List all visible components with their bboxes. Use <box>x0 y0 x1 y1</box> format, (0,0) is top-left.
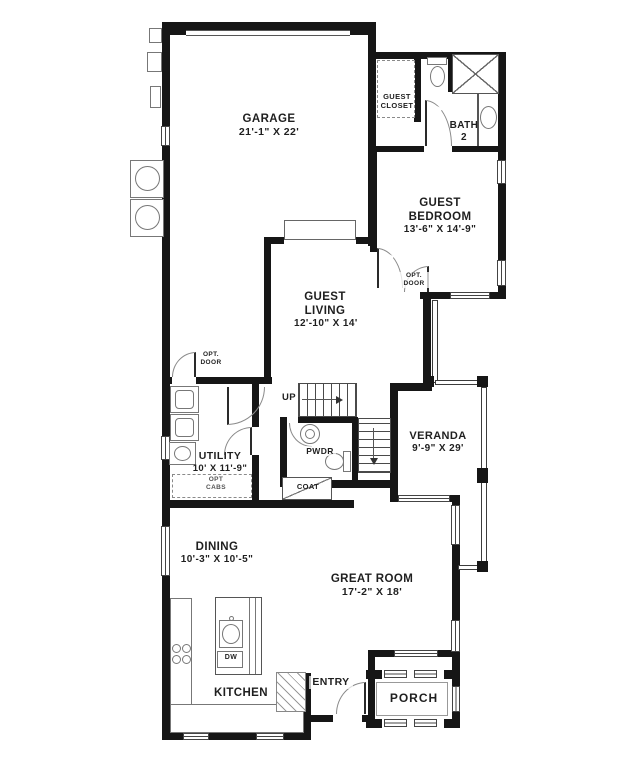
dw-label: DW <box>222 654 240 663</box>
stairs-up-flight <box>298 383 357 417</box>
window <box>497 160 506 184</box>
washer-drum <box>175 390 194 409</box>
window <box>394 650 438 657</box>
guest-closet-label: GUEST CLOSET <box>377 92 417 110</box>
wall <box>252 455 259 500</box>
toilet-tank <box>427 57 447 65</box>
stairs-arrow-head <box>336 396 343 404</box>
dining-label: DINING 10'-3" X 10'-5" <box>175 540 259 566</box>
wall <box>303 715 311 740</box>
veranda-post <box>477 468 488 483</box>
toilet-tank <box>343 451 351 472</box>
wall <box>162 500 354 508</box>
opt-cabs-label: OPT CABS <box>198 476 234 492</box>
window <box>183 733 209 740</box>
window <box>384 670 407 678</box>
wall <box>414 58 421 122</box>
cooktop-burner <box>172 655 181 664</box>
utility-meter <box>149 28 162 43</box>
up-label: UP <box>280 392 298 404</box>
veranda-rail <box>432 300 438 383</box>
veranda-post <box>477 376 488 387</box>
window <box>451 620 460 652</box>
window <box>161 526 170 576</box>
great-room-label: GREAT ROOM 17'-2" X 18' <box>322 572 422 599</box>
dryer-drum <box>175 418 194 437</box>
toilet-bowl <box>430 66 445 87</box>
porch-wall <box>366 670 382 679</box>
veranda-post <box>423 376 434 387</box>
cooktop-burner <box>182 655 191 664</box>
veranda-label: VERANDA 9'-9" X 29' <box>406 430 470 456</box>
wall <box>368 650 375 722</box>
window <box>414 670 437 678</box>
cooktop-burner <box>182 644 191 653</box>
stairs-arrow <box>373 428 374 458</box>
wall <box>264 237 271 383</box>
corner-pantry <box>276 672 306 712</box>
window <box>256 733 284 740</box>
opt-door-swing <box>172 352 196 377</box>
kitchen-counter-left <box>170 598 192 708</box>
island-sink-bowl <box>222 624 240 644</box>
window <box>497 260 506 286</box>
stairs-arrow-head <box>370 458 378 465</box>
wall <box>390 480 398 502</box>
water-heater-circle <box>135 166 160 191</box>
window <box>161 126 170 146</box>
window <box>398 495 450 502</box>
porch-wall <box>366 719 382 728</box>
veranda-rail <box>435 380 480 385</box>
door-swing <box>227 387 265 425</box>
window <box>452 686 460 712</box>
cased-opening <box>284 220 356 240</box>
veranda-post <box>477 561 488 572</box>
wall <box>162 377 172 384</box>
shower <box>452 54 499 94</box>
wall <box>376 146 424 152</box>
opt-door-label: OPT. DOOR <box>196 351 226 367</box>
porch-label: PORCH <box>386 691 442 706</box>
pwdr-label: PWDR <box>304 446 336 456</box>
porch-wall <box>452 710 460 728</box>
opt-door-label: OPT. DOOR <box>397 272 431 288</box>
utility-meter <box>147 52 162 72</box>
entry-label: ENTRY <box>309 676 353 689</box>
wall <box>196 377 272 384</box>
window <box>414 719 437 727</box>
window <box>450 292 490 299</box>
guest-bedroom-label: GUEST BEDROOM 13'-6" X 14'-9" <box>400 196 480 236</box>
bath2-label: BATH 2 <box>444 120 484 144</box>
wall <box>280 417 287 480</box>
wall <box>390 383 398 488</box>
window <box>384 719 407 727</box>
wall <box>162 22 376 30</box>
wall <box>356 237 376 244</box>
stairs-arrow <box>302 399 336 400</box>
guest-living-label: GUEST LIVING 12'-10" X 14' <box>294 290 356 330</box>
wall <box>162 22 188 35</box>
garage-door <box>186 30 350 36</box>
pwdr-sink-bowl <box>305 429 315 439</box>
coat-label: COAT <box>292 482 324 491</box>
wall <box>452 146 498 152</box>
garage-label: GARAGE 21'-1" X 22' <box>227 112 311 139</box>
utility-label: UTILITY 10' X 11'-9" <box>188 450 252 474</box>
floor-plan: GARAGE 21'-1" X 22' GUEST CLOSET BATH 2 … <box>0 0 621 757</box>
wall <box>423 292 431 387</box>
water-softener-circle <box>135 205 160 230</box>
window <box>451 505 460 545</box>
cooktop-burner <box>172 644 181 653</box>
faucet <box>229 616 234 621</box>
hose-bib <box>150 86 161 108</box>
wall <box>490 292 506 299</box>
kitchen-label: KITCHEN <box>205 686 277 700</box>
